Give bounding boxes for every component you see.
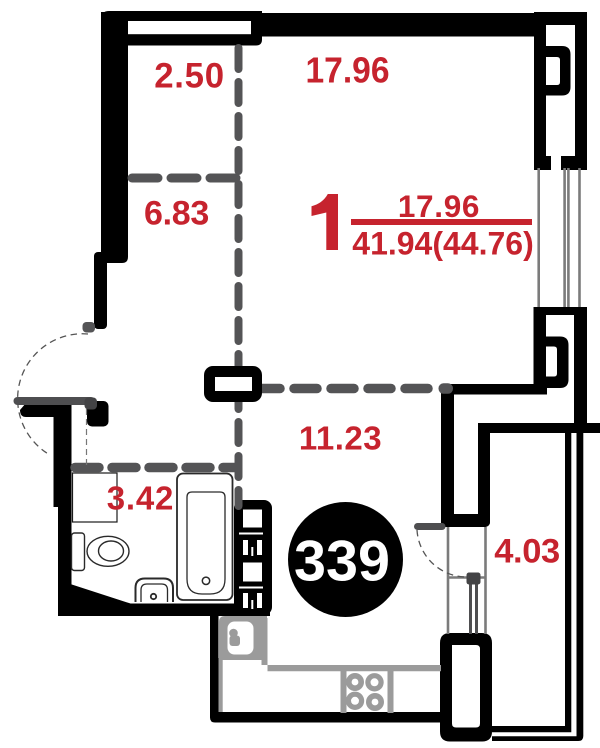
svg-text:6.83: 6.83 <box>144 195 209 233</box>
svg-text:339: 339 <box>294 530 390 594</box>
svg-text:3.42: 3.42 <box>107 479 174 516</box>
svg-text:4.03: 4.03 <box>494 532 560 570</box>
svg-text:11.23: 11.23 <box>299 419 382 456</box>
svg-text:41.94(44.76): 41.94(44.76) <box>352 226 533 262</box>
svg-text:17.96: 17.96 <box>305 50 389 91</box>
svg-text:17.96: 17.96 <box>398 188 480 224</box>
svg-text:2.50: 2.50 <box>154 56 225 95</box>
